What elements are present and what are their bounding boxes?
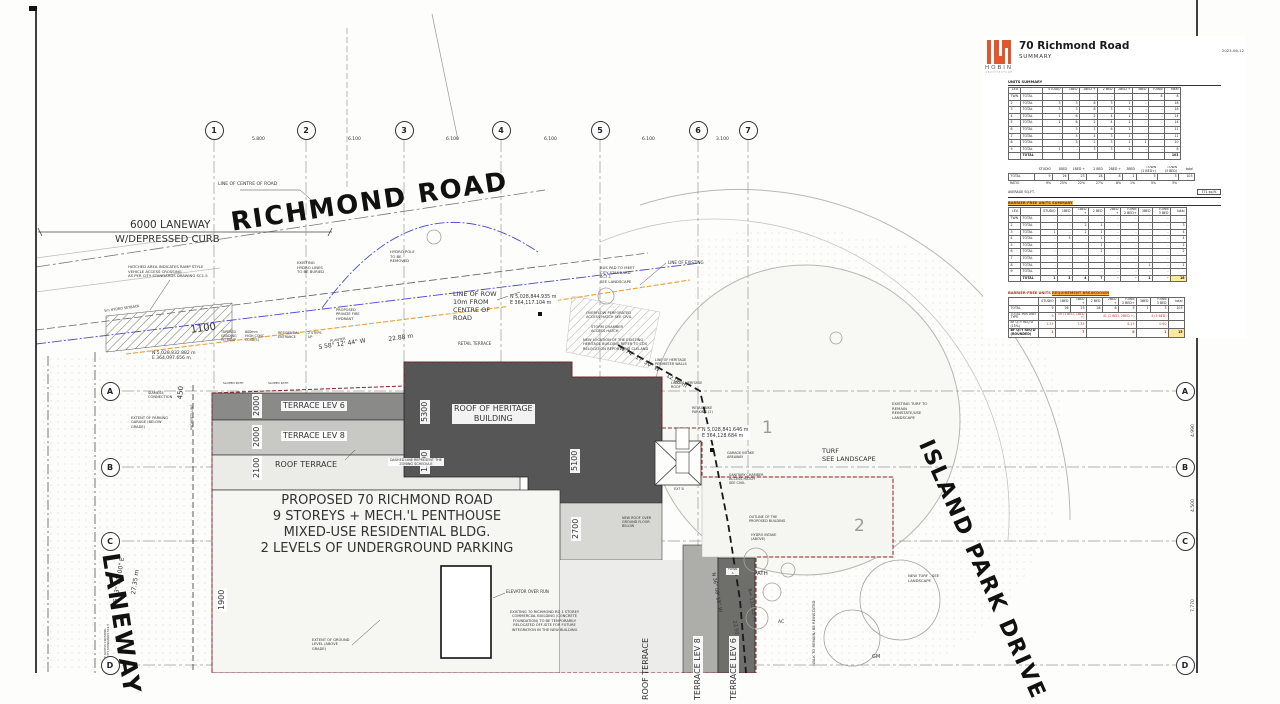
table-cell: -	[1073, 262, 1089, 269]
table-cell: -	[1105, 269, 1121, 276]
table-cell: 2	[1073, 229, 1089, 236]
table-cell: 2BED +	[1103, 297, 1119, 305]
table-cell: 4	[1073, 275, 1089, 282]
east-roof-extent	[702, 477, 893, 557]
table-cell: 1BED	[1063, 87, 1080, 94]
table-cell: 2	[1089, 249, 1105, 256]
panel-header: HOBIN ARCHITECTURE 70 Richmond Road SUMM…	[983, 36, 1246, 77]
bf-summary-table: LEV.STUDIO1BED1BED +2 BED2BED +TOWN 2 BE…	[1008, 207, 1187, 282]
table-cell: 2	[1080, 113, 1098, 120]
coord-marker-3	[710, 448, 714, 452]
table-cell: 8	[1149, 94, 1165, 101]
bf-summary-label: BARRIER-FREE UNITS SUMMARY	[1008, 201, 1221, 207]
table-cell: -	[1058, 223, 1073, 230]
table-cell: 1	[1041, 275, 1058, 282]
table-cell: TOTAL	[1021, 153, 1043, 160]
table-cell: -	[1133, 120, 1149, 127]
table-cell: 3	[1098, 107, 1115, 114]
elevator-overrun-box	[441, 566, 491, 658]
table-cell: -	[1149, 100, 1165, 107]
table-cell: 103	[1169, 306, 1185, 313]
table-cell: total	[1169, 297, 1185, 305]
table-cell: total	[1171, 208, 1187, 216]
table-cell: STUDIO	[1041, 208, 1058, 216]
table-cell: -	[1133, 100, 1149, 107]
table-cell: -	[1073, 255, 1089, 262]
table-cell: -	[1139, 216, 1153, 223]
table-cell: 3	[1080, 146, 1098, 153]
table-cell: 3%	[1158, 180, 1179, 186]
table-cell: -	[1073, 242, 1089, 249]
table-cell	[1021, 87, 1043, 94]
terrace8-strip	[683, 545, 718, 673]
table-cell: LEV.	[1009, 87, 1021, 94]
table-cell: -	[1149, 107, 1165, 114]
table-cell: 4 (3 BED)	[1137, 312, 1169, 320]
panel-subtitle: SUMMARY	[1019, 54, 1129, 60]
panel-titles: 70 Richmond Road SUMMARY	[1019, 40, 1129, 60]
grid-bubble-row-D-right: D	[1176, 656, 1195, 675]
table-cell: 28	[1087, 306, 1103, 313]
grid-bubble-row-A-right: A	[1176, 382, 1195, 401]
table-cell: 18	[1165, 100, 1181, 107]
roof-terrace-lower	[560, 560, 683, 673]
table-cell: 3	[1043, 107, 1063, 114]
table-cell: -	[1043, 127, 1063, 134]
table-cell: 1	[1115, 107, 1133, 114]
grid-bubble-col-7: 7	[739, 121, 758, 140]
table-cell: BF QTY REQ'D (15%)	[1009, 321, 1039, 329]
table-cell: -	[1089, 216, 1105, 223]
table-cell: 8%	[1105, 180, 1123, 186]
table-cell: 11	[1165, 127, 1181, 134]
table-cell: -	[1041, 249, 1058, 256]
table-cell: TOTAL	[1009, 174, 1035, 181]
table-cell: -	[1171, 269, 1187, 276]
table-cell: -	[1133, 94, 1149, 101]
table-cell: 5	[1009, 242, 1021, 249]
table-cell: 3BED	[1137, 297, 1151, 305]
table-cell: 5	[1137, 174, 1158, 181]
grid-bubble-row-D-left: D	[101, 656, 120, 675]
table-cell: 7	[1089, 275, 1105, 282]
table-cell: 3BED	[1139, 208, 1153, 216]
table-cell: -	[1121, 229, 1139, 236]
table-cell: TOWN (3 BED)	[1158, 166, 1179, 174]
table-cell: -	[1105, 262, 1121, 269]
table-cell: 8	[1103, 306, 1119, 313]
table-cell: -	[1105, 236, 1121, 243]
table-cell: -	[1121, 236, 1139, 243]
table-cell: -	[1121, 249, 1139, 256]
table-cell: 1	[1115, 146, 1133, 153]
table-cell: TOTAL	[1021, 236, 1041, 243]
table-cell: 1	[1123, 174, 1137, 181]
table-cell: -	[1139, 242, 1153, 249]
table-cell: -	[1121, 216, 1139, 223]
table-cell: 8	[1105, 174, 1123, 181]
table-cell: 9	[1035, 174, 1053, 181]
table-cell: 1	[1080, 127, 1098, 134]
table-cell	[1098, 153, 1115, 160]
table-cell: -	[1139, 236, 1153, 243]
table-cell: 5	[1009, 120, 1021, 127]
table-cell: 3	[1098, 146, 1115, 153]
table-cell: 1	[1139, 262, 1153, 269]
table-cell: -	[1153, 223, 1171, 230]
table-cell: 7	[1056, 329, 1087, 337]
table-cell: 8	[1165, 146, 1181, 153]
table-cell: TOTAL	[1021, 249, 1041, 256]
table-cell: 27%	[1087, 180, 1105, 186]
table-cell: -	[1041, 269, 1058, 276]
table-cell: 3	[1171, 223, 1187, 230]
units-summary-label: UNITS SUMMARY	[1008, 80, 1221, 86]
table-cell: 8	[1009, 140, 1021, 147]
table-cell: -	[1041, 216, 1058, 223]
table-cell: 4	[1171, 229, 1187, 236]
grid-bubble-col-3: 3	[395, 121, 414, 140]
grid-bubble-row-C-left: C	[101, 532, 120, 551]
site-plan-sheet: 5.8006.1006.1006.1006.1003.1004.9904.500…	[0, 0, 1280, 673]
table-cell: 3	[1009, 229, 1021, 236]
table-cell: TOWN (2 BED+)	[1137, 166, 1158, 174]
table-cell: -	[1089, 262, 1105, 269]
table-cell: 1	[1043, 120, 1063, 127]
table-cell: 5	[1119, 306, 1137, 313]
table-cell: 6	[1009, 249, 1021, 256]
units-ratio-table: STUDIO1BED1BED +2 BED2BED +3BEDTOWN (2 B…	[1008, 166, 1195, 187]
table-cell: TOTAL	[1021, 146, 1043, 153]
table-cell: TOWN	[1149, 87, 1165, 94]
bf-breakdown-table: STUDIO1BED1BED +2 BED2BED +TOWN 2 BED+3B…	[1008, 297, 1185, 338]
table-cell: -	[1121, 269, 1139, 276]
grid-bubble-row-A-left: A	[101, 382, 120, 401]
table-cell: 15	[1169, 329, 1185, 337]
table-cell: 4	[1171, 236, 1187, 243]
table-cell: 3	[1098, 140, 1115, 147]
table-cell: TOTAL	[1021, 262, 1041, 269]
table-cell: 26	[1053, 174, 1069, 181]
table-cell: 3	[1063, 127, 1080, 134]
table-cell: 3	[1063, 107, 1080, 114]
table-cell: 1	[1089, 236, 1105, 243]
table-cell	[1169, 312, 1185, 320]
table-cell: 1	[1133, 140, 1149, 147]
table-cell: 9	[1009, 146, 1021, 153]
table-cell: TOTAL	[1021, 127, 1043, 134]
table-cell: 6	[1098, 127, 1115, 134]
panel-title: 70 Richmond Road	[1019, 40, 1129, 52]
table-cell: -	[1133, 107, 1149, 114]
table-cell: -	[1058, 249, 1073, 256]
table-cell: 8	[1165, 94, 1181, 101]
table-cell: STUDIO	[1039, 297, 1056, 305]
table-cell: 1	[1043, 146, 1063, 153]
units-summary-table: LEV.STUDIO1BED1BED +2 BED2BED +3BEDTOWNt…	[1008, 87, 1181, 161]
grid-bubble-col-1: 1	[205, 121, 224, 140]
table-cell: -	[1089, 255, 1105, 262]
table-cell	[1149, 153, 1165, 160]
table-cell: 1	[1089, 229, 1105, 236]
table-cell: 3	[1098, 100, 1115, 107]
table-cell: TOWN 2 BED+	[1119, 297, 1137, 305]
table-cell: 6.15	[1087, 321, 1137, 329]
table-cell: 16	[1171, 275, 1187, 282]
table-cell: 7	[1009, 133, 1021, 140]
table-cell: 1	[1139, 275, 1153, 282]
table-cell: TOTAL	[1021, 100, 1043, 107]
table-cell: 103	[1165, 153, 1181, 160]
hydro-arc	[322, 222, 538, 308]
table-cell: -	[1121, 262, 1139, 269]
table-cell: STUDIO	[1035, 166, 1053, 174]
table-cell: TWN	[1009, 216, 1021, 223]
bf-summary-label-text: BARRIER-FREE UNITS SUMMARY	[1008, 201, 1073, 205]
table-cell: 2 BED	[1098, 87, 1115, 94]
table-cell: TOTAL	[1021, 242, 1041, 249]
table-cell: 9%	[1035, 180, 1053, 186]
table-cell: -	[1149, 133, 1165, 140]
table-cell: 1	[1039, 329, 1056, 337]
heritage-footprint-hatch	[566, 296, 660, 368]
table-cell: -	[1073, 249, 1089, 256]
table-cell: TOTAL	[1021, 216, 1041, 223]
table-cell: RATIO	[1009, 180, 1035, 186]
table-cell: 3	[1063, 100, 1080, 107]
grid-bubble-col-4: 4	[492, 121, 511, 140]
table-cell: -	[1063, 94, 1080, 101]
table-cell: TOTAL	[1021, 113, 1043, 120]
grid-bubble-row-C-right: C	[1176, 532, 1195, 551]
summary-panel: HOBIN ARCHITECTURE 70 Richmond Road SUMM…	[983, 36, 1246, 338]
bf-breakdown-label-hl: REQUIREMENT BREAKDOWN	[1052, 291, 1109, 295]
table-cell: 6	[1009, 127, 1021, 134]
table-cell: 5%	[1137, 180, 1158, 186]
table-cell: 1BED +	[1073, 208, 1089, 216]
table-cell: 1	[1115, 127, 1133, 134]
table-cell: 1BED +	[1069, 166, 1087, 174]
table-cell: total	[1179, 166, 1195, 174]
centreline-of-road	[36, 190, 545, 267]
table-cell: -	[1105, 229, 1121, 236]
table-cell: 8	[1009, 262, 1021, 269]
table-cell: 3BED	[1123, 166, 1137, 174]
table-cell: -	[1149, 127, 1165, 134]
table-cell: total	[1165, 87, 1181, 94]
table-cell: 4	[1009, 236, 1021, 243]
table-cell: -	[1121, 275, 1139, 282]
table-cell: BF QTY REQ'D (ROUNDED)	[1009, 329, 1039, 337]
table-cell: -	[1139, 255, 1153, 262]
table-cell: 2 BED	[1087, 297, 1103, 305]
table-cell: LEV.	[1009, 208, 1021, 216]
bike-box-2	[676, 452, 689, 473]
hobin-logo-mark	[987, 40, 1011, 64]
average-label: AVERAGE SQ.FT.	[1008, 190, 1035, 194]
table-cell: -	[1153, 262, 1171, 269]
table-cell: 6	[1087, 329, 1137, 337]
table-cell: TOTAL	[1009, 306, 1039, 313]
table-cell	[1169, 321, 1185, 329]
average-value: 771 sq.ft.	[1197, 189, 1221, 195]
table-cell: 1BED	[1056, 297, 1071, 305]
table-cell: -	[1153, 269, 1171, 276]
grid-bubble-col-6: 6	[689, 121, 708, 140]
table-cell: -	[1041, 242, 1058, 249]
table-cell: -	[1133, 127, 1149, 134]
table-cell: 8	[1080, 107, 1098, 114]
table-cell: 1	[1137, 329, 1169, 337]
table-cell: TOWN 3 BED	[1151, 297, 1169, 305]
table-cell: -	[1149, 113, 1165, 120]
table-cell: 18	[1165, 107, 1181, 114]
table-cell: -	[1105, 249, 1121, 256]
table-cell: 28	[1087, 174, 1105, 181]
table-cell: -	[1121, 255, 1139, 262]
table-cell: -	[1149, 120, 1165, 127]
table-cell: -	[1089, 269, 1105, 276]
table-cell: 3	[1151, 306, 1169, 313]
table-cell: -	[1073, 236, 1089, 243]
table-cell: TWN	[1009, 94, 1021, 101]
table-cell: 9	[1039, 312, 1056, 320]
table-cell: 1	[1115, 133, 1133, 140]
table-cell: 1BED	[1058, 208, 1073, 216]
table-cell	[1115, 153, 1133, 160]
coord-marker-1	[538, 312, 542, 316]
table-cell: -	[1063, 146, 1080, 153]
table-cell: 1	[1041, 229, 1058, 236]
table-cell: -	[1073, 216, 1089, 223]
row-line	[36, 253, 648, 330]
hobin-logo: HOBIN ARCHITECTURE	[985, 40, 1013, 74]
table-cell	[1080, 153, 1098, 160]
table-cell: -	[1139, 223, 1153, 230]
table-cell: -	[1171, 255, 1187, 262]
table-cell: 22%	[1069, 180, 1087, 186]
sheet-corner-mark	[29, 6, 37, 11]
table-cell: 2	[1080, 120, 1098, 127]
table-cell: -	[1041, 236, 1058, 243]
table-cell: 1	[1137, 306, 1151, 313]
table-cell: 1	[1089, 223, 1105, 230]
table-cell: 8	[1080, 100, 1098, 107]
table-cell: 1	[1171, 262, 1187, 269]
table-cell: -	[1073, 269, 1089, 276]
table-cell: 1	[1115, 120, 1133, 127]
table-cell: 103	[1179, 174, 1195, 181]
table-cell: -	[1043, 133, 1063, 140]
tables-wrap: UNITS SUMMARY LEV.STUDIO1BED1BED +2 BED2…	[1008, 80, 1221, 338]
table-cell: -	[1139, 269, 1153, 276]
panel-date: 2023-06-12	[1222, 40, 1244, 53]
table-cell: -	[1133, 146, 1149, 153]
table-cell: 9	[1009, 269, 1021, 276]
table-cell: 2	[1080, 140, 1098, 147]
table-cell: 3	[1063, 140, 1080, 147]
table-cell: TOTAL	[1021, 269, 1041, 276]
grid-bubble-row-B-right: B	[1176, 458, 1195, 477]
bf-breakdown-label: BARRIER-FREE UNITS REQUIREMENT BREAKDOWN	[1008, 291, 1221, 296]
table-cell: 3	[1058, 236, 1073, 243]
table-cell: -	[1133, 133, 1149, 140]
table-cell: 14	[1165, 113, 1181, 120]
table-cell: -	[1105, 216, 1121, 223]
table-cell: 3	[1009, 107, 1021, 114]
table-cell: 23	[1069, 174, 1087, 181]
table-cell: TOTAL	[1021, 275, 1041, 282]
table-cell: 2	[1009, 223, 1021, 230]
bike-box-1	[676, 428, 689, 449]
table-cell: TOWN 3 BED	[1153, 208, 1171, 216]
table-cell: 3	[1043, 100, 1063, 107]
table-cell: 2BED +	[1105, 208, 1121, 216]
table-cell: 2 BED	[1089, 208, 1105, 216]
table-cell: 11	[1165, 133, 1181, 140]
bf-breakdown-label-plain: BARRIER-FREE UNITS	[1008, 291, 1052, 295]
table-cell: -	[1058, 262, 1073, 269]
main-roof-mass	[212, 490, 560, 673]
table-cell: 4	[1080, 133, 1098, 140]
table-cell: 4	[1098, 113, 1115, 120]
average-row: AVERAGE SQ.FT. 771 sq.ft.	[1008, 188, 1221, 198]
table-cell: 1	[1089, 242, 1105, 249]
hobin-logo-sub: ARCHITECTURE	[985, 71, 1013, 74]
table-cell: 6	[1063, 113, 1080, 120]
table-cell: 1	[1115, 140, 1133, 147]
table-cell: 1	[1115, 113, 1133, 120]
table-cell: TOTAL	[1021, 229, 1041, 236]
table-cell: -	[1171, 216, 1187, 223]
table-cell: -	[1153, 216, 1171, 223]
table-cell: 10	[1165, 140, 1181, 147]
table-cell: TOTAL	[1021, 255, 1041, 262]
table-cell: -	[1058, 269, 1073, 276]
table-cell: -	[1105, 242, 1121, 249]
table-cell: 1BED +	[1080, 87, 1098, 94]
table-cell: 41 (2 BED, 2BED +)	[1087, 312, 1137, 320]
table-cell: 26	[1056, 306, 1071, 313]
table-cell: 1	[1171, 242, 1187, 249]
table-cell: TOTAL	[1021, 94, 1043, 101]
table-cell: -	[1115, 94, 1133, 101]
table-cell: -	[1149, 146, 1165, 153]
table-cell: -	[1105, 223, 1121, 230]
table-cell: 0.60	[1137, 321, 1169, 329]
table-cell: -	[1153, 236, 1171, 243]
table-cell: TOTAL	[1021, 107, 1043, 114]
table-cell: 2BED +	[1115, 87, 1133, 94]
stipple-west	[40, 342, 212, 673]
table-cell: -	[1105, 255, 1121, 262]
table-cell	[1009, 166, 1035, 174]
table-cell: 3	[1158, 174, 1179, 181]
table-cell: 4	[1098, 120, 1115, 127]
table-cell: 3BED	[1133, 87, 1149, 94]
table-cell: TOWN 2 BED+	[1121, 208, 1139, 216]
table-cell: 1BED	[1053, 166, 1069, 174]
table-cell: 9	[1039, 306, 1056, 313]
table-cell: 1	[1043, 113, 1063, 120]
table-cell: 23	[1071, 306, 1087, 313]
table-cell: 4	[1009, 113, 1021, 120]
table-cell: 2	[1009, 100, 1021, 107]
table-cell: 14	[1165, 120, 1181, 127]
table-cell: 1BED +	[1071, 297, 1087, 305]
table-cell: -	[1058, 255, 1073, 262]
table-cell	[1179, 180, 1195, 186]
